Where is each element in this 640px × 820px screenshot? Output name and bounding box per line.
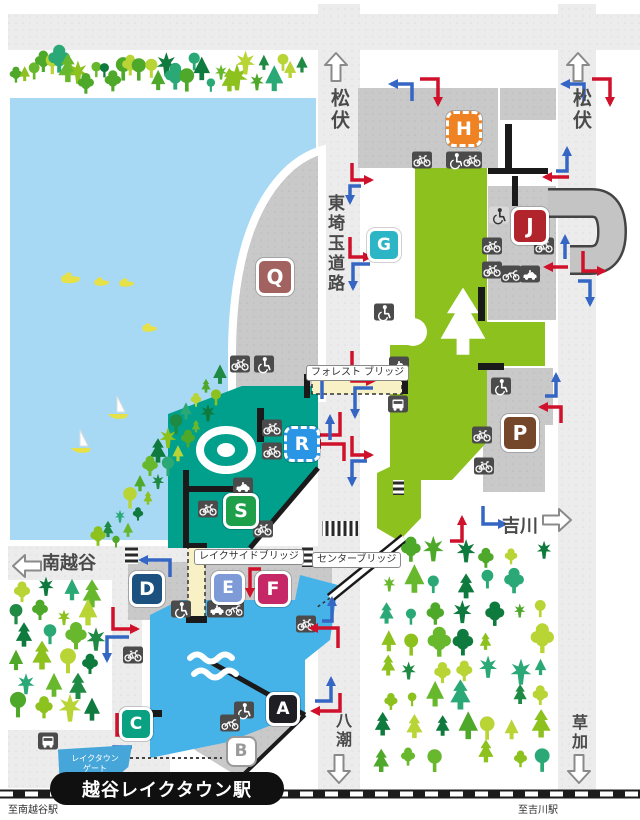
tree-icon: [250, 73, 264, 90]
tree-icon: [427, 602, 444, 624]
tree-icon: [84, 698, 100, 721]
tree-icon: [511, 659, 532, 685]
bicycle-icon: [462, 152, 482, 169]
tree-icon: [404, 564, 424, 593]
bicycle-icon: [262, 443, 282, 460]
building-marker-H: H: [446, 111, 482, 147]
tree-icon: [91, 62, 101, 77]
building-marker-D: D: [129, 571, 165, 607]
tree-icon: [453, 600, 471, 623]
tree-icon: [514, 603, 525, 617]
tree-icon: [478, 548, 494, 568]
laketown-area-map: 松伏 松伏 東埼玉道路 南越谷 吉川 八潮 草加 至南越谷駅 至吉川駅 フォレス…: [0, 0, 640, 820]
tree-icon: [16, 622, 32, 646]
tree-icon: [44, 624, 57, 644]
tree-icon: [35, 696, 52, 718]
tree-icon: [10, 604, 23, 624]
tree-icon: [479, 656, 497, 678]
bicycle-icon: [123, 647, 143, 664]
crosswalk: [393, 480, 404, 495]
building-marker-R: R: [284, 426, 320, 462]
tree-icon: [375, 712, 391, 736]
tree-icon: [296, 56, 307, 72]
tree-icon: [427, 749, 441, 772]
bicycle-icon: [262, 420, 282, 437]
tree-icon: [533, 685, 548, 705]
tree-icon: [434, 662, 450, 683]
tree-icon: [373, 749, 389, 772]
building-marker-B: B: [226, 736, 257, 767]
wheelchair-icon: [374, 304, 394, 321]
building-marker-A: A: [266, 692, 300, 726]
tree-icon: [504, 568, 524, 593]
tree-icon: [453, 629, 474, 656]
tree-icon: [112, 536, 119, 548]
tree-icon: [179, 68, 194, 91]
tree-icon: [535, 748, 550, 772]
tree-icon: [105, 70, 121, 91]
bicycle-icon: [472, 427, 492, 444]
motorcycle-icon: [501, 266, 521, 283]
tree-icon: [480, 633, 492, 650]
station-name: 越谷レイクタウン駅: [82, 776, 252, 802]
tree-icon: [100, 63, 109, 77]
tree-icon: [532, 709, 551, 737]
tree-icon: [514, 751, 527, 768]
to-yoshikawa-station-label: 至吉川駅: [518, 801, 558, 816]
crosswalk: [322, 521, 358, 536]
tree-icon: [58, 609, 71, 625]
tree-icon: [480, 716, 495, 739]
building-marker-F: F: [255, 571, 291, 607]
tree-icon: [384, 693, 397, 710]
taxi-icon: [233, 478, 253, 495]
tree-icon: [32, 641, 51, 670]
to-minami-koshigaya-station-label: 至南越谷駅: [8, 801, 58, 816]
building-marker-P: P: [501, 414, 539, 452]
tree-icon: [459, 711, 478, 739]
tree-icon: [406, 714, 422, 738]
matsubushi-left-label: 松伏: [326, 88, 353, 132]
tree-icon: [381, 655, 395, 676]
tree-icon: [428, 627, 451, 657]
road-name-label: 東埼玉道路: [322, 194, 347, 294]
matsubushi-right-label: 松伏: [568, 88, 595, 132]
tree-icon: [423, 536, 444, 562]
center-bridge-label: センターブリッジ: [312, 552, 401, 568]
station-banner: 越谷レイクタウン駅: [50, 772, 284, 805]
tree-icon: [29, 62, 40, 79]
building-marker-C: C: [119, 707, 153, 741]
crosswalk: [125, 547, 138, 564]
tree-icon: [478, 739, 493, 762]
tree-icon: [401, 748, 415, 766]
taxi-icon: [520, 266, 540, 283]
forest-bridge-label: フォレスト ブリッジ: [306, 365, 409, 381]
tree-icon: [69, 673, 87, 699]
minami-koshigaya-label: 南越谷: [42, 549, 96, 575]
tree-icon: [408, 692, 417, 706]
tree-icon: [383, 576, 395, 591]
tree-icon: [505, 548, 517, 564]
tree-icon: [83, 579, 102, 607]
tree-icon: [151, 70, 165, 90]
tree-icon: [82, 654, 98, 674]
building-marker-E: E: [211, 571, 245, 605]
tree-icon: [87, 627, 106, 650]
wheelchair-icon: [254, 356, 274, 373]
tree-icon: [9, 650, 23, 670]
tree-icon: [259, 55, 270, 70]
building-marker-Q: Q: [256, 258, 294, 296]
tree-icon: [436, 715, 450, 736]
wheelchair-icon: [171, 601, 191, 618]
bicycle-icon: [412, 152, 432, 169]
tree-icon: [404, 634, 418, 656]
tree-icon: [485, 601, 504, 625]
building-marker-J: J: [511, 207, 549, 245]
bicycle-icon: [198, 501, 218, 518]
motorcycle-icon: [220, 715, 240, 732]
tree-icon: [535, 600, 546, 617]
tree-icon: [482, 570, 494, 589]
building-marker-G: G: [367, 228, 401, 262]
tree-icon: [18, 673, 35, 694]
tree-icon: [537, 541, 551, 559]
tree-icon: [505, 719, 519, 739]
bus-icon: [38, 733, 58, 750]
bicycle-icon: [482, 262, 502, 279]
tree-icon: [379, 602, 393, 623]
tree-icon: [426, 681, 444, 707]
tree-icon: [132, 58, 146, 80]
tree-icon: [145, 59, 157, 78]
lakeside-bridge-label: レイクサイドブリッジ: [194, 549, 304, 565]
tree-icon: [428, 576, 439, 594]
tree-icon: [265, 65, 283, 91]
tree-icon: [450, 679, 470, 709]
tree-icon: [535, 659, 546, 675]
tree-icon: [32, 600, 48, 620]
tree-icon: [46, 673, 63, 697]
bicycle-icon: [296, 616, 316, 633]
bicycle-icon: [230, 356, 250, 373]
tree-icon: [10, 67, 22, 83]
bicycle-icon: [482, 238, 502, 255]
map-base-graphics: [0, 0, 640, 820]
tree-icon: [406, 609, 416, 625]
yashio-label: 八潮: [330, 712, 354, 750]
gate-label-line1: レイクタウン: [71, 754, 119, 764]
tree-icon: [401, 661, 415, 679]
tree-icon: [207, 78, 215, 91]
traffic-arrow-red: [450, 518, 462, 541]
tree-icon: [14, 581, 30, 602]
tree-icon: [514, 684, 527, 704]
tree-icon: [19, 66, 30, 81]
bicycle-icon: [474, 458, 494, 475]
tree-icon: [10, 692, 26, 717]
yoshikawa-label: 吉川: [502, 512, 538, 538]
tree-icon: [531, 623, 554, 653]
tree-icon: [60, 648, 76, 673]
tree-icon: [215, 64, 227, 79]
tree-icon: [381, 630, 396, 651]
wheelchair-icon: [489, 207, 509, 224]
tree-icon: [65, 622, 86, 649]
tree-icon: [64, 579, 79, 601]
tree-icon: [456, 660, 472, 681]
soka-label: 草加: [566, 714, 590, 752]
wheelchair-icon: [491, 378, 511, 395]
tree-icon: [458, 573, 475, 598]
building-marker-S: S: [223, 493, 259, 529]
bus-icon: [388, 396, 408, 413]
